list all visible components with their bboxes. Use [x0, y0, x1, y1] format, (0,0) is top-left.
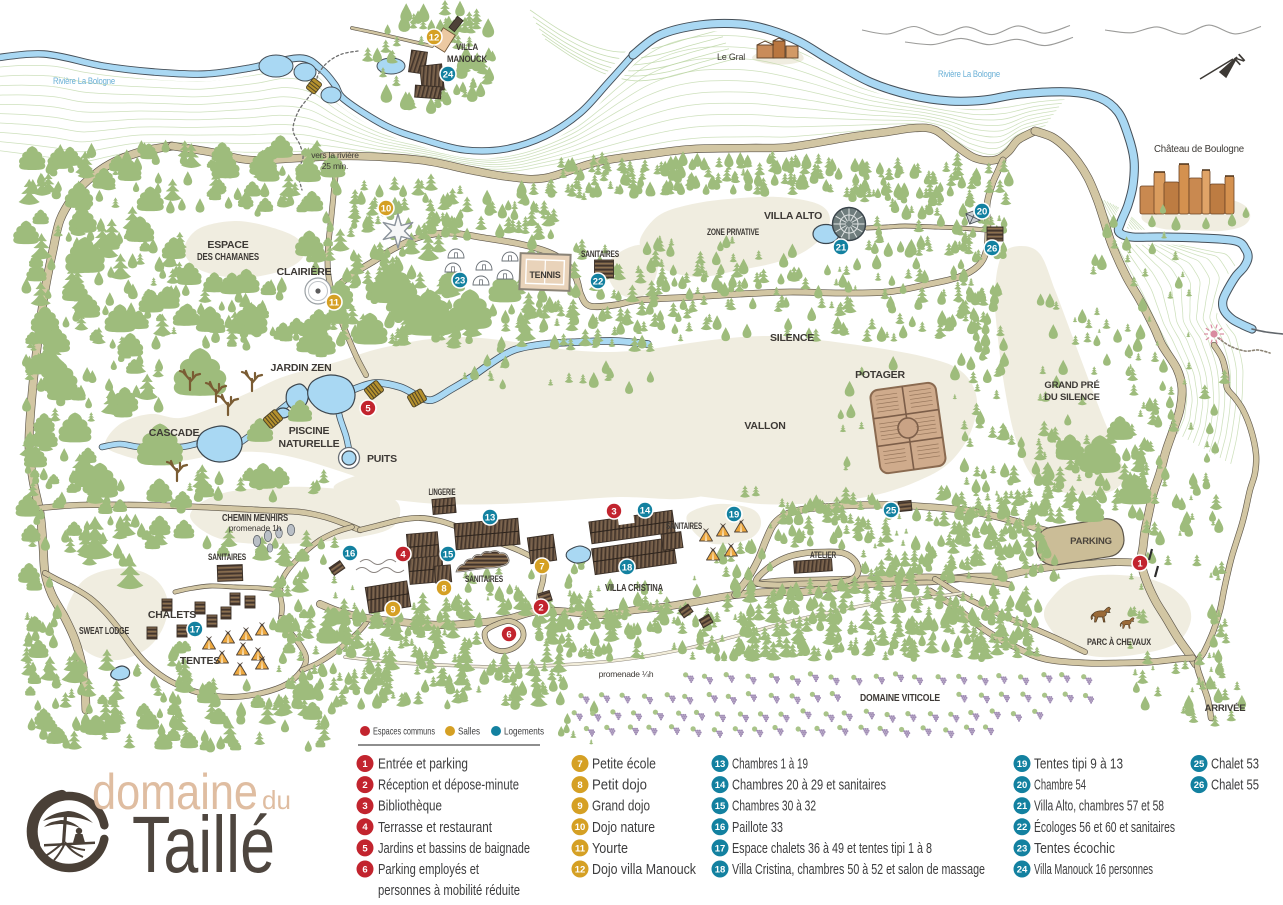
svg-text:9: 9 [390, 604, 395, 615]
svg-text:21: 21 [1017, 801, 1028, 812]
svg-text:PARC À CHEVAUX: PARC À CHEVAUX [1087, 637, 1152, 648]
svg-text:2: 2 [362, 780, 367, 791]
svg-text:Château de Boulogne: Château de Boulogne [1154, 144, 1245, 155]
svg-text:6: 6 [506, 629, 511, 640]
svg-text:personnes à mobilité réduite: personnes à mobilité réduite [378, 882, 520, 899]
svg-text:VILLA CRISTINA: VILLA CRISTINA [605, 582, 663, 594]
svg-text:20: 20 [977, 206, 988, 217]
svg-text:Bibliothèque: Bibliothèque [378, 798, 442, 815]
svg-text:Taillé: Taillé [132, 800, 275, 889]
svg-text:ARRIVÉE: ARRIVÉE [1205, 703, 1246, 714]
svg-text:Le Gral: Le Gral [717, 52, 745, 62]
svg-text:Chalet 53: Chalet 53 [1211, 756, 1259, 773]
svg-text:SANITAIRES: SANITAIRES [465, 574, 503, 584]
svg-text:19: 19 [729, 509, 740, 520]
svg-text:13: 13 [715, 759, 726, 770]
svg-text:MANOUCK: MANOUCK [447, 54, 487, 65]
svg-text:15: 15 [715, 801, 726, 812]
svg-text:CHALETS: CHALETS [148, 609, 196, 621]
svg-text:23: 23 [455, 275, 466, 286]
svg-text:PARKING: PARKING [1070, 536, 1112, 547]
svg-text:23: 23 [1017, 843, 1028, 854]
svg-text:ESPACE: ESPACE [207, 239, 248, 251]
svg-text:17: 17 [715, 843, 726, 854]
svg-text:Entrée et parking: Entrée et parking [378, 756, 468, 773]
svg-text:Tentes tipi 9 à 13: Tentes tipi 9 à 13 [1034, 756, 1123, 773]
svg-text:12: 12 [429, 32, 440, 43]
svg-text:JARDIN ZEN: JARDIN ZEN [270, 362, 331, 374]
svg-text:DOMAINE VITICOLE: DOMAINE VITICOLE [860, 692, 940, 704]
svg-text:SANITAIRES: SANITAIRES [208, 552, 246, 562]
svg-text:25: 25 [1194, 759, 1205, 770]
svg-text:VILLA ALTO: VILLA ALTO [764, 210, 822, 222]
svg-text:Dojo villa Manouck: Dojo villa Manouck [592, 861, 696, 878]
svg-text:11: 11 [575, 843, 586, 854]
svg-text:17: 17 [190, 624, 201, 635]
svg-text:4: 4 [362, 822, 368, 833]
svg-text:Réception et dépose-minute: Réception et dépose-minute [378, 777, 519, 794]
svg-text:19: 19 [1017, 759, 1028, 770]
svg-text:Rivière La Bologne: Rivière La Bologne [53, 76, 115, 86]
svg-text:Espaces communs: Espaces communs [373, 726, 435, 738]
svg-text:DES CHAMANES: DES CHAMANES [197, 251, 259, 263]
svg-text:Chalet 55: Chalet 55 [1211, 777, 1259, 794]
svg-text:Chambres 20 à 29 et sanitaires: Chambres 20 à 29 et sanitaires [732, 777, 886, 794]
svg-text:ATELIER: ATELIER [810, 550, 836, 560]
svg-text:NATURELLE: NATURELLE [278, 438, 339, 450]
svg-text:26: 26 [987, 243, 998, 254]
svg-text:CLAIRIÈRE: CLAIRIÈRE [277, 265, 332, 278]
svg-text:SANITAIRES: SANITAIRES [581, 249, 619, 259]
svg-text:PUITS: PUITS [367, 453, 397, 465]
svg-text:14: 14 [715, 780, 726, 791]
svg-text:22: 22 [1017, 822, 1028, 833]
svg-text:Villa Manouck 16 personnes: Villa Manouck 16 personnes [1034, 861, 1153, 878]
svg-text:25: 25 [886, 505, 897, 516]
svg-text:13: 13 [485, 512, 496, 523]
svg-text:18: 18 [622, 562, 633, 573]
svg-text:1: 1 [1137, 558, 1143, 569]
svg-text:VALLON: VALLON [744, 420, 785, 432]
svg-text:vers la rivière: vers la rivière [311, 150, 359, 160]
svg-text:Logements: Logements [504, 726, 544, 738]
svg-text:SWEAT LODGE: SWEAT LODGE [79, 625, 129, 637]
svg-text:Grand dojo: Grand dojo [592, 798, 650, 815]
svg-text:DU SILENCE: DU SILENCE [1044, 392, 1100, 403]
svg-text:CASCADE: CASCADE [149, 427, 200, 439]
svg-text:Écologes 56 et 60 et sanitaire: Écologes 56 et 60 et sanitaires [1034, 819, 1175, 836]
svg-text:Paillote 33: Paillote 33 [732, 819, 783, 836]
svg-text:promenade 1h: promenade 1h [229, 523, 282, 533]
svg-text:14: 14 [640, 505, 651, 516]
svg-text:PISCINE: PISCINE [289, 425, 330, 437]
svg-text:POTAGER: POTAGER [855, 369, 905, 381]
svg-text:16: 16 [715, 822, 726, 833]
svg-text:18: 18 [715, 864, 726, 875]
svg-text:Rivière La Bologne: Rivière La Bologne [938, 69, 1000, 79]
svg-text:Parking employés et: Parking employés et [378, 861, 480, 878]
svg-text:Petite école: Petite école [592, 756, 656, 773]
svg-text:10: 10 [381, 203, 392, 214]
svg-text:4: 4 [400, 549, 406, 560]
svg-text:9: 9 [577, 801, 582, 812]
svg-text:GRAND PRÉ: GRAND PRÉ [1044, 380, 1099, 391]
svg-text:3: 3 [611, 506, 616, 517]
svg-text:25 min.: 25 min. [322, 161, 348, 171]
svg-text:7: 7 [577, 759, 582, 770]
svg-text:5: 5 [362, 843, 368, 854]
svg-text:Petit dojo: Petit dojo [592, 777, 647, 794]
svg-text:VILLA: VILLA [456, 42, 478, 53]
svg-text:Tentes écochic: Tentes écochic [1034, 840, 1115, 857]
svg-text:15: 15 [443, 549, 454, 560]
svg-text:Terrasse et restaurant: Terrasse et restaurant [378, 819, 493, 836]
svg-text:6: 6 [362, 864, 367, 875]
svg-text:24: 24 [1017, 864, 1028, 875]
svg-text:TENTES: TENTES [180, 655, 220, 667]
svg-text:1: 1 [362, 759, 368, 770]
svg-text:20: 20 [1017, 780, 1028, 791]
svg-text:11: 11 [329, 297, 340, 308]
svg-text:SANITAIRES: SANITAIRES [666, 521, 702, 531]
svg-text:12: 12 [575, 864, 586, 875]
svg-text:26: 26 [1194, 780, 1205, 791]
svg-text:5: 5 [365, 403, 371, 414]
svg-text:Salles: Salles [458, 726, 480, 738]
svg-text:Yourte: Yourte [592, 840, 628, 857]
svg-text:21: 21 [836, 242, 847, 253]
svg-text:10: 10 [575, 822, 586, 833]
svg-text:Chambres 30 à 32: Chambres 30 à 32 [732, 798, 816, 815]
svg-text:promenade ¼h: promenade ¼h [599, 669, 654, 679]
svg-text:TENNIS: TENNIS [530, 270, 561, 280]
svg-text:2: 2 [538, 602, 543, 613]
svg-text:3: 3 [362, 801, 367, 812]
svg-text:ZONE PRIVATIVE: ZONE PRIVATIVE [707, 227, 759, 238]
svg-text:24: 24 [443, 69, 454, 80]
svg-text:Chambres 1 à 19: Chambres 1 à 19 [732, 756, 808, 773]
svg-text:LINGERIE: LINGERIE [429, 487, 456, 497]
svg-text:8: 8 [441, 583, 446, 594]
svg-text:Chambre 54: Chambre 54 [1034, 777, 1086, 794]
svg-text:SILENCE: SILENCE [770, 332, 814, 344]
svg-text:Dojo nature: Dojo nature [592, 819, 655, 836]
svg-text:7: 7 [539, 561, 544, 572]
svg-text:Jardins et bassins de baignade: Jardins et bassins de baignade [378, 840, 530, 857]
svg-text:22: 22 [593, 276, 604, 287]
svg-text:Villa Alto, chambres 57 et 58: Villa Alto, chambres 57 et 58 [1034, 798, 1164, 815]
svg-text:Villa Cristina, chambres 50 à: Villa Cristina, chambres 50 à 52 et salo… [732, 861, 985, 878]
svg-text:16: 16 [345, 548, 356, 559]
svg-text:Espace chalets 36 à 49 et tent: Espace chalets 36 à 49 et tentes tipi 1 … [732, 840, 932, 857]
svg-text:8: 8 [577, 780, 582, 791]
